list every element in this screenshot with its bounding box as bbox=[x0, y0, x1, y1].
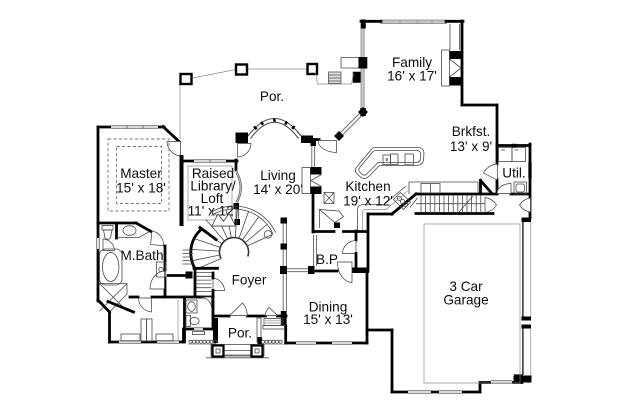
svg-text:13' x 9': 13' x 9' bbox=[450, 139, 492, 154]
svg-text:M.Bath: M.Bath bbox=[120, 248, 163, 263]
svg-text:Garage: Garage bbox=[443, 293, 488, 308]
svg-text:Por.: Por. bbox=[228, 326, 252, 341]
svg-text:16' x 17': 16' x 17' bbox=[387, 69, 437, 84]
svg-text:Foyer: Foyer bbox=[232, 273, 267, 288]
svg-text:Kitchen: Kitchen bbox=[345, 179, 390, 194]
svg-text:Brkfst.: Brkfst. bbox=[452, 124, 491, 139]
svg-text:Por.: Por. bbox=[260, 89, 284, 104]
svg-text:15' x 18': 15' x 18' bbox=[116, 181, 166, 196]
svg-text:14' x 20': 14' x 20' bbox=[253, 182, 303, 197]
svg-text:19' x 12': 19' x 12' bbox=[343, 194, 393, 209]
svg-text:15' x 13': 15' x 13' bbox=[303, 312, 353, 327]
svg-text:Util.: Util. bbox=[502, 166, 525, 181]
svg-text:B.P.: B.P. bbox=[316, 252, 340, 267]
svg-text:Master: Master bbox=[120, 166, 162, 181]
svg-text:Living: Living bbox=[260, 168, 296, 183]
